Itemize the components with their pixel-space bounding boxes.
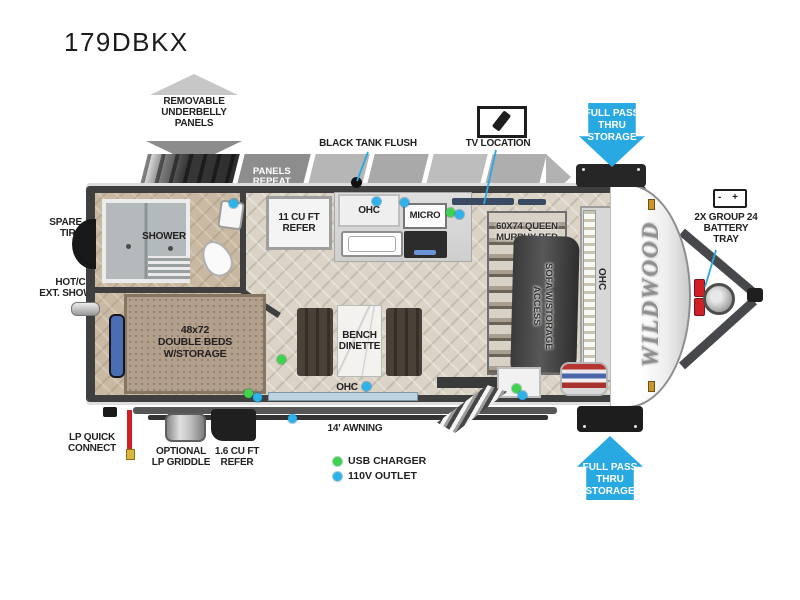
shower-drain — [126, 244, 131, 249]
kitchen-ohc: OHC — [338, 194, 400, 227]
lp-line-fitting — [126, 449, 135, 460]
tongue-jack-icon — [703, 283, 735, 315]
battery-icon: - + — [713, 189, 747, 208]
usb-charger-dot — [446, 208, 455, 217]
awning-roller — [148, 415, 548, 420]
black-tank-flush-port — [351, 177, 362, 188]
window-slat — [518, 199, 546, 205]
outlet-legend-label: 110V OUTLET — [348, 470, 417, 482]
pass-thru-storage-arrow-bottom: FULL PASS THRU STORAGE — [577, 436, 643, 500]
refrigerator: 11 CU FT REFER — [266, 196, 332, 250]
marker-light-icon — [648, 381, 655, 392]
dinette-label: BENCH DINETTE — [339, 330, 380, 352]
kitchen-ohc-label: OHC — [358, 205, 380, 216]
black-tank-flush-label: BLACK TANK FLUSH — [310, 138, 426, 149]
usb-charger-legend-label: USB CHARGER — [348, 455, 426, 467]
dinette-window — [268, 392, 418, 401]
model-title: 179DBKX — [64, 27, 189, 58]
tv-icon — [477, 106, 527, 138]
outlet-110v-dot — [253, 393, 262, 402]
marker-light-icon — [648, 199, 655, 210]
lp-griddle — [165, 413, 206, 442]
usb-charger-dot — [244, 389, 253, 398]
refrigerator-label: 11 CU FT REFER — [278, 212, 319, 234]
outlet-110v-dot — [362, 382, 371, 391]
stove — [404, 231, 447, 258]
panels-repeat-label: PANELS REPEAT — [253, 167, 291, 188]
tv-mount-slat — [452, 198, 514, 205]
pass-thru-door-top — [576, 164, 646, 187]
usb-charger-legend-dot — [333, 457, 342, 466]
shower-drain — [168, 246, 173, 251]
dinette-bench-left — [297, 308, 333, 376]
bedroom-window — [109, 314, 125, 378]
bedroom-wall — [95, 287, 246, 293]
optional-griddle-label: OPTIONAL LP GRIDDLE — [150, 446, 212, 468]
underbelly-up-arrow-icon — [150, 74, 238, 95]
awning-label: 14' AWNING — [320, 423, 390, 434]
outlet-110v-dot — [372, 197, 381, 206]
usb-charger-dot — [277, 355, 286, 364]
decor-item — [560, 362, 608, 396]
outside-refer-label: 1.6 CU FT REFER — [208, 446, 266, 468]
double-beds: 48x72 DOUBLE BEDS W/STORAGE — [124, 294, 266, 394]
outlet-110v-dot — [288, 414, 297, 423]
bottom-ohc-label: OHC — [330, 382, 364, 393]
lp-quick-connect-label: LP QUICK CONNECT — [62, 432, 122, 454]
microwave-label: MICRO — [410, 211, 441, 222]
double-beds-label: 48x72 DOUBLE BEDS W/STORAGE — [127, 325, 263, 360]
microwave: MICRO — [403, 203, 447, 229]
hitch-coupler-icon — [747, 288, 763, 302]
floorplan-canvas: 179DBKX REMOVABLE UNDERBELLY PANELS PANE… — [0, 0, 800, 600]
tv-remote-icon — [492, 110, 511, 131]
shower-step-slats — [148, 256, 190, 282]
outlet-110v-dot — [518, 391, 527, 400]
outside-refrigerator — [211, 409, 256, 441]
kitchen-sink — [341, 231, 403, 257]
dinette-bench-right — [386, 308, 422, 376]
outlet-110v-dot — [455, 210, 464, 219]
dinette-table: BENCH DINETTE — [337, 305, 382, 377]
outlet-legend-dot — [333, 472, 342, 481]
exterior-shower-fixture — [71, 302, 100, 316]
lp-quick-connect-line — [127, 410, 132, 450]
underbelly-label: REMOVABLE UNDERBELLY PANELS — [140, 96, 248, 130]
pass-thru-door-bottom — [577, 406, 643, 432]
lp-connect-port — [103, 407, 117, 417]
sofa-label: SOFA W/STORAGE ACCESS — [530, 246, 554, 366]
battery-tray-label: 2X GROUP 24 BATTERY TRAY — [686, 212, 766, 246]
shower-label: SHOWER — [130, 231, 198, 242]
tv-location-label: TV LOCATION — [453, 138, 543, 149]
outlet-110v-dot — [229, 199, 238, 208]
pass-thru-storage-arrow-top: FULL PASS THRU STORAGE — [579, 103, 645, 167]
outlet-110v-dot — [400, 198, 409, 207]
